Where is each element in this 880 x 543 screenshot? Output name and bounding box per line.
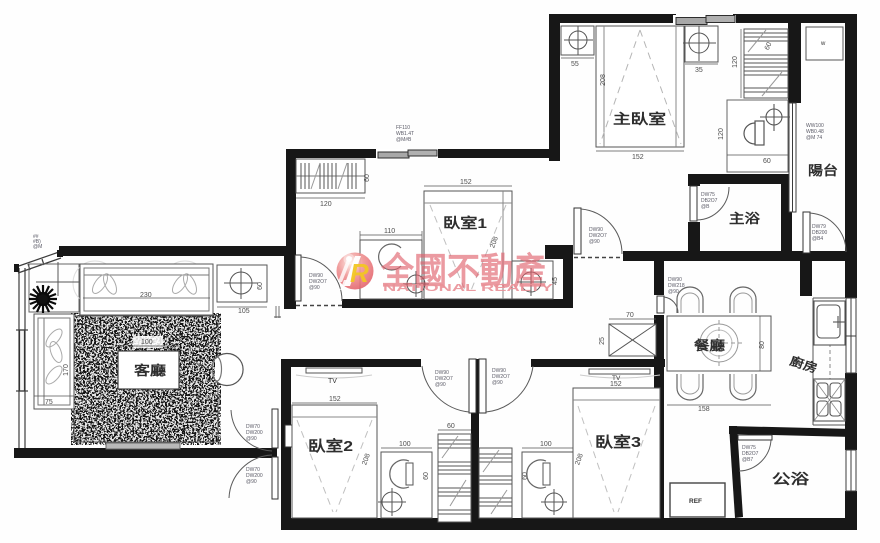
svg-text:臥室1: 臥室1	[443, 215, 487, 231]
svg-text:@B4: @B4	[812, 236, 823, 242]
svg-text:158: 158	[698, 406, 710, 413]
svg-text:75: 75	[45, 399, 53, 406]
svg-text:@90: @90	[589, 239, 600, 245]
svg-text:100: 100	[540, 441, 552, 448]
svg-text:主浴: 主浴	[729, 211, 761, 226]
svg-text:170: 170	[63, 364, 70, 376]
svg-text:60: 60	[423, 472, 430, 480]
svg-text:@90: @90	[435, 382, 446, 388]
svg-text:70: 70	[626, 312, 634, 319]
svg-text:@M#B: @M#B	[396, 137, 412, 143]
svg-text:@B7: @B7	[742, 457, 753, 463]
svg-text:120: 120	[718, 128, 725, 140]
svg-text:主臥室: 主臥室	[613, 111, 666, 127]
svg-text:NATIONAL REALTY: NATIONAL REALTY	[383, 283, 554, 294]
svg-text:陽台: 陽台	[808, 163, 838, 178]
svg-text:臥室2: 臥室2	[308, 437, 353, 455]
svg-text:35: 35	[695, 67, 703, 74]
svg-text:@90: @90	[246, 479, 257, 485]
svg-text:152: 152	[632, 154, 644, 161]
svg-text:60: 60	[257, 282, 264, 290]
svg-text:230: 230	[140, 292, 152, 299]
svg-text:@M: @M	[33, 244, 42, 250]
svg-text:152: 152	[610, 381, 622, 388]
svg-text:152: 152	[460, 179, 472, 186]
svg-text:@90: @90	[246, 436, 257, 442]
svg-text:REF: REF	[689, 498, 702, 505]
svg-text:60: 60	[447, 423, 455, 430]
svg-text:120: 120	[732, 56, 739, 68]
svg-text:208: 208	[600, 74, 607, 86]
svg-text:25: 25	[599, 337, 606, 345]
svg-text:客廳: 客廳	[134, 363, 166, 378]
svg-text:110: 110	[384, 228, 395, 235]
svg-text:@90: @90	[492, 380, 503, 386]
svg-text:60: 60	[763, 158, 771, 165]
svg-text:臥室3: 臥室3	[595, 433, 641, 451]
svg-text:@M 74: @M 74	[806, 135, 822, 141]
svg-text:55: 55	[571, 61, 579, 68]
svg-text:105: 105	[238, 308, 250, 315]
svg-text:120: 120	[320, 201, 332, 208]
svg-text:@90: @90	[309, 285, 320, 291]
svg-text:w: w	[820, 41, 826, 47]
svg-text:餐廳: 餐廳	[693, 338, 725, 353]
svg-text:45: 45	[552, 277, 559, 285]
svg-text:TV: TV	[328, 378, 337, 385]
svg-text:60: 60	[364, 174, 371, 182]
svg-text:80: 80	[759, 341, 766, 349]
svg-text:100: 100	[399, 441, 411, 448]
svg-text:公浴: 公浴	[772, 471, 810, 487]
svg-text:@B: @B	[701, 204, 710, 210]
svg-text:100: 100	[141, 339, 153, 346]
svg-text:60: 60	[522, 472, 529, 480]
svg-text:@90: @90	[668, 289, 679, 295]
svg-text:152: 152	[329, 396, 341, 403]
